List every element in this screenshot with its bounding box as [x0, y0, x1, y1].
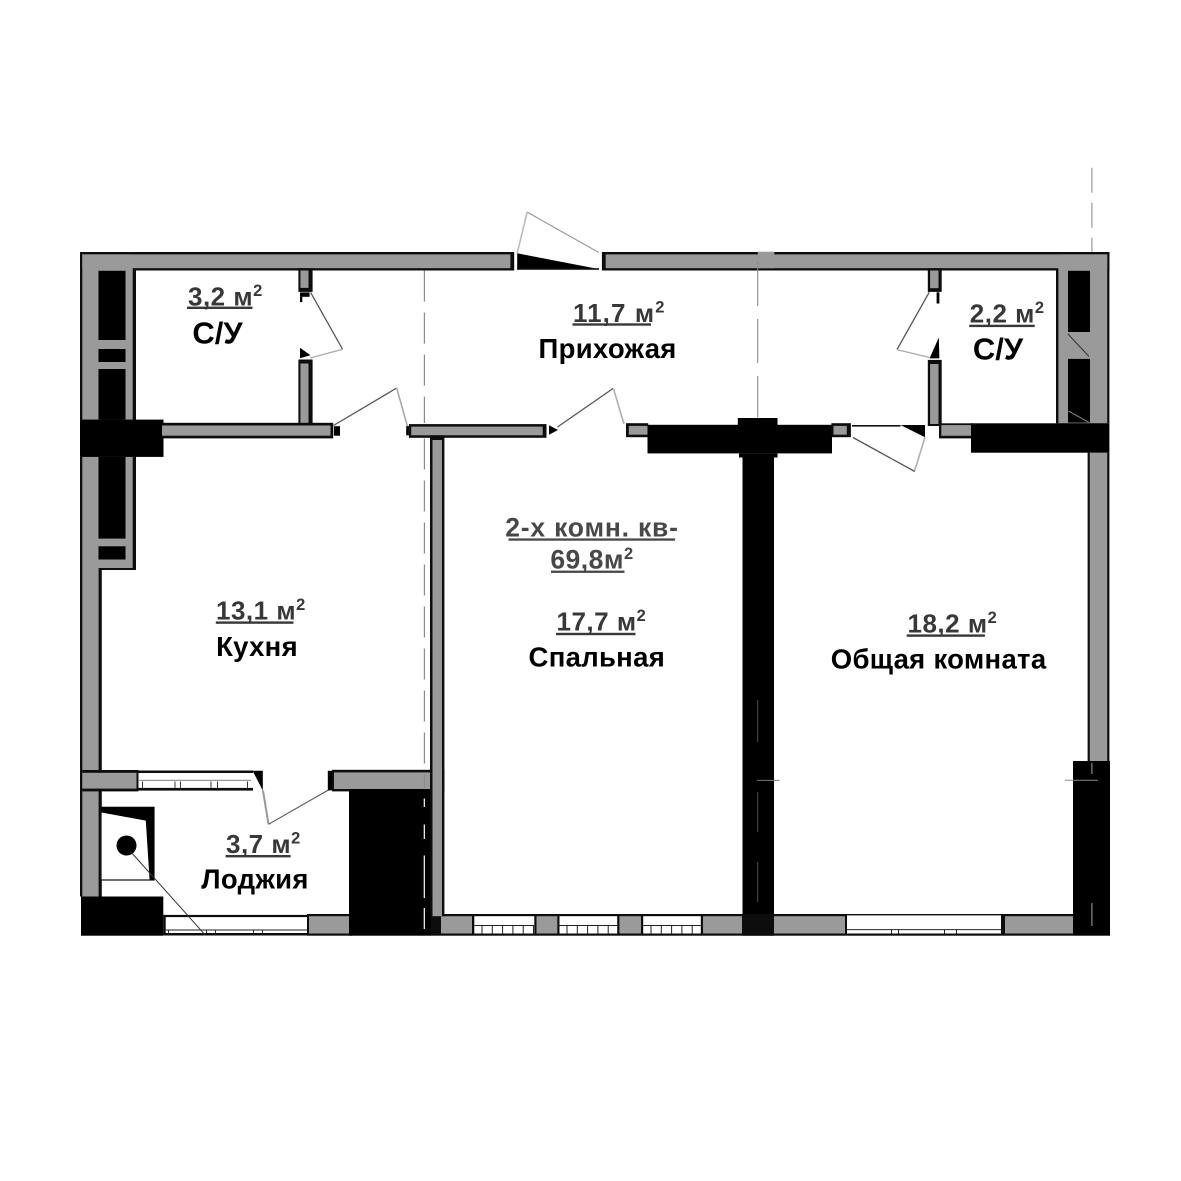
svg-text:Прихожая: Прихожая: [539, 333, 677, 364]
svg-text:Спальная: Спальная: [529, 641, 666, 672]
svg-text:С/У: С/У: [192, 315, 243, 350]
svg-text:Лоджия: Лоджия: [201, 864, 308, 895]
svg-text:69,8м2: 69,8м2: [550, 544, 633, 574]
svg-text:18,2 м2: 18,2 м2: [908, 608, 998, 638]
svg-text:Общая комната: Общая комната: [831, 644, 1047, 675]
svg-text:2-х комн. кв-: 2-х комн. кв-: [505, 513, 679, 543]
svg-text:17,7 м2: 17,7 м2: [557, 607, 647, 637]
svg-text:3,7 м2: 3,7 м2: [226, 829, 301, 859]
svg-text:С/У: С/У: [973, 332, 1024, 367]
svg-text:2,2 м2: 2,2 м2: [970, 299, 1045, 329]
svg-text:13,1 м2: 13,1 м2: [216, 596, 306, 626]
svg-text:Кухня: Кухня: [216, 631, 298, 662]
